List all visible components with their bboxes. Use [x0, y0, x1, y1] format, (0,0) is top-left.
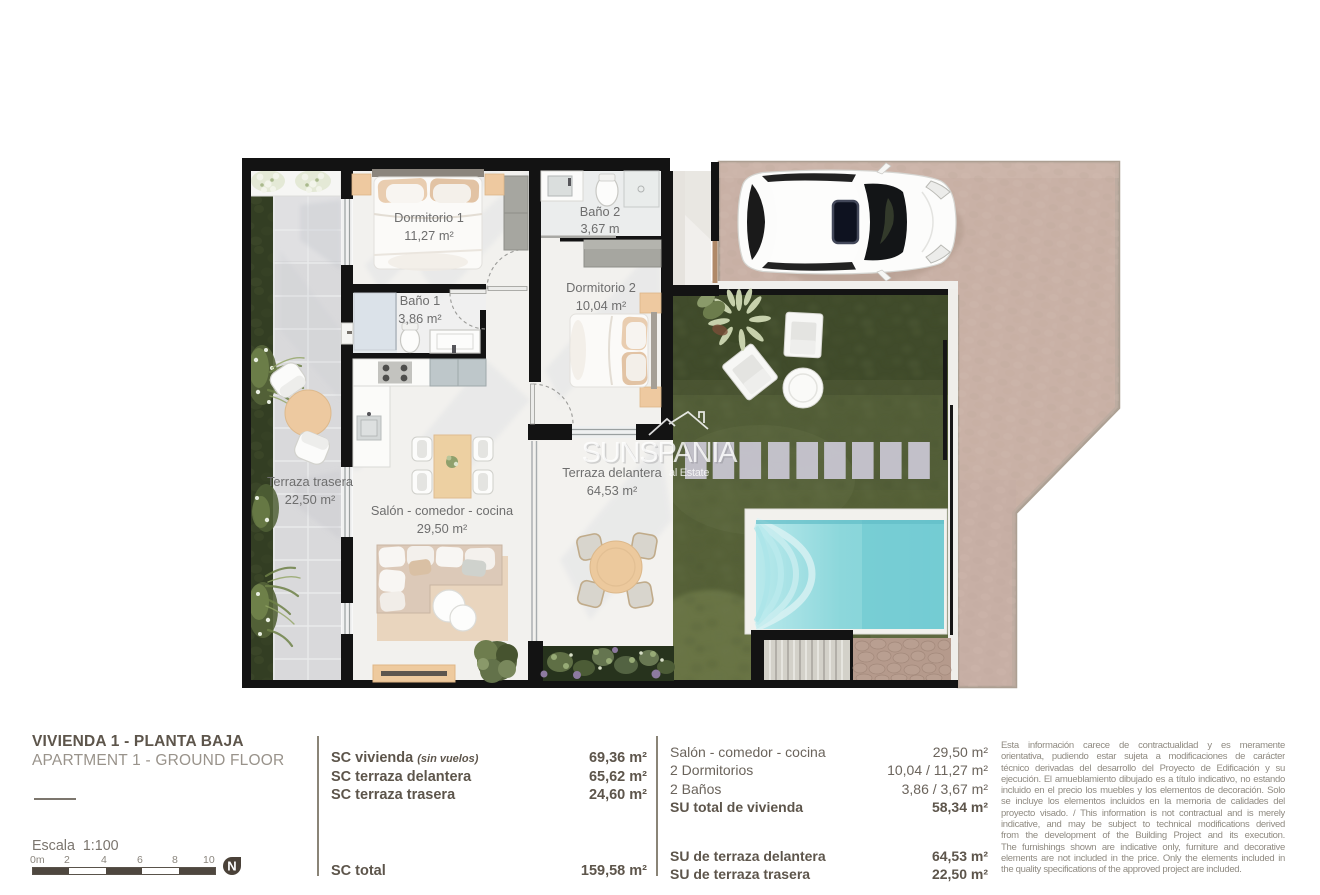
svg-text:Baño 2: Baño 2 [580, 204, 621, 219]
svg-text:Dormitorio 1: Dormitorio 1 [394, 210, 464, 225]
svg-text:3,67 m: 3,67 m [580, 221, 619, 236]
svg-text:Dormitorio 2: Dormitorio 2 [566, 280, 636, 295]
svg-text:3,86 m²: 3,86 m² [398, 311, 442, 326]
svg-text:10,04 m²: 10,04 m² [576, 298, 627, 313]
svg-text:11,27 m²: 11,27 m² [404, 228, 454, 243]
svg-text:64,53 m²: 64,53 m² [587, 483, 638, 498]
svg-text:Baño 1: Baño 1 [400, 293, 441, 308]
svg-text:Terraza trasera: Terraza trasera [267, 474, 354, 489]
svg-text:22,50 m²: 22,50 m² [285, 492, 336, 507]
svg-text:Salón - comedor - cocina: Salón - comedor - cocina [371, 503, 514, 518]
svg-text:29,50 m²: 29,50 m² [417, 521, 468, 536]
svg-text:N: N [227, 859, 236, 874]
svg-text:SUNSPANIA: SUNSPANIA [582, 437, 739, 469]
svg-text:al Estate: al Estate [669, 467, 709, 479]
